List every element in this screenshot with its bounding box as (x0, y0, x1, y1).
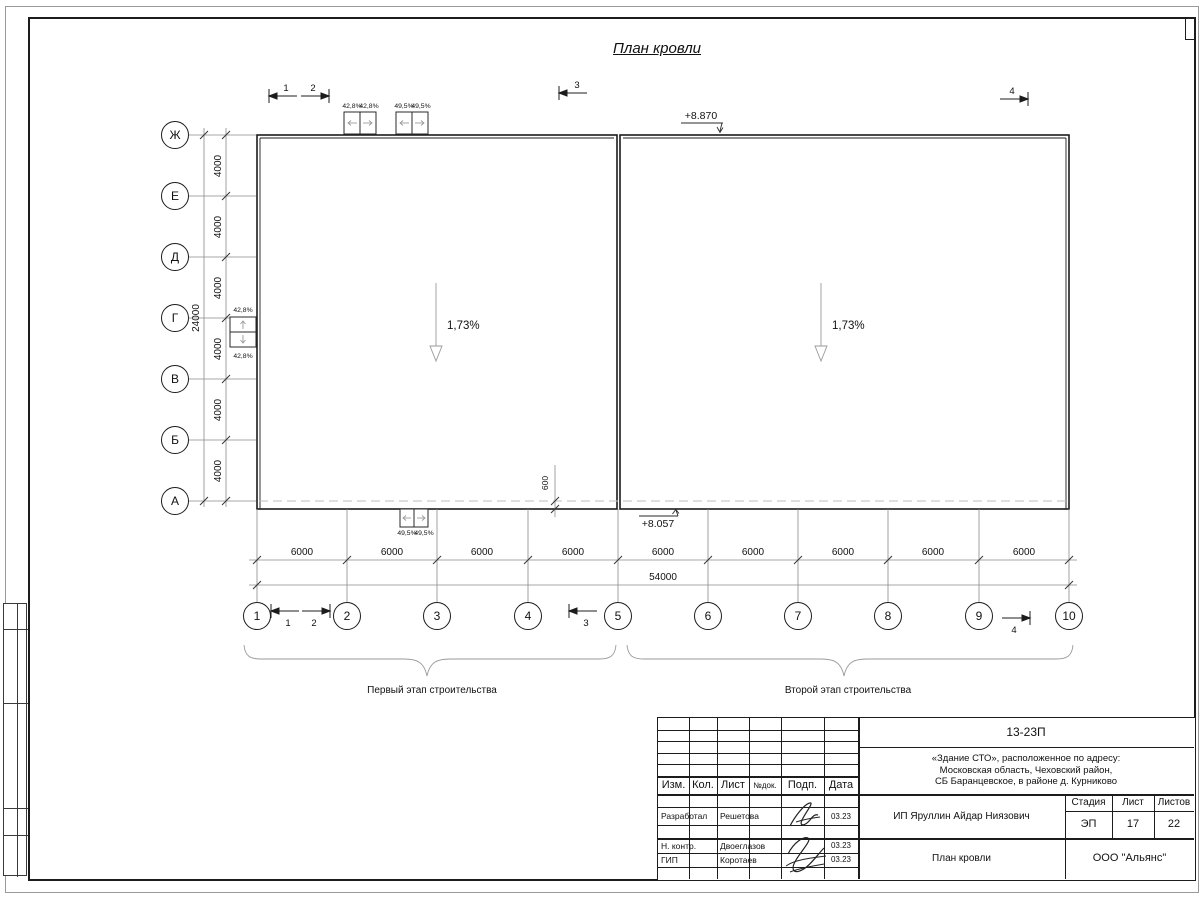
tb-role: Разработал (658, 808, 717, 825)
section-label: 2 (310, 83, 315, 94)
axis-label: Ж (169, 128, 180, 142)
slope-label: 1,73% (447, 320, 480, 332)
vent-slope-label: 49,5% (411, 103, 430, 110)
section-label: 3 (583, 618, 588, 629)
tb-col-data: Дата (824, 777, 858, 794)
elevation-label: +8.870 (685, 110, 718, 122)
tb-col-izm: Изм. (658, 777, 689, 794)
axis-label: 8 (885, 609, 892, 623)
tb-project-line: Московская область, Чеховский район, (940, 765, 1113, 776)
dim-label: 6000 (922, 547, 945, 558)
dim-label: 4000 (213, 398, 224, 421)
section-marks-bottom: 1 2 3 4 (271, 604, 1030, 636)
tb-project-line: «Здание СТО», расположенное по адресу: (932, 753, 1121, 764)
dim-label: 6000 (652, 547, 675, 558)
elevation-marks: +8.870 +8.057 (639, 110, 723, 530)
tb-project-name: «Здание СТО», расположенное по адресу: М… (858, 747, 1194, 794)
vent-slope-label: 42,8% (359, 103, 378, 110)
tb-drawing-title: План кровли (858, 838, 1065, 879)
dim-label: 6000 (291, 547, 314, 558)
dim-label: 4000 (213, 154, 224, 177)
tb-client: ИП Яруллин Айдар Ниязович (858, 795, 1065, 838)
tb-doc-number: 13-23П (858, 718, 1194, 747)
vent-slope-label: 42,8% (233, 353, 252, 360)
axis-label: Д (171, 250, 179, 264)
axis-label: 3 (434, 609, 441, 623)
tb-role: Н. контр. (658, 839, 717, 853)
tb-stage-value: ЭП (1065, 811, 1112, 838)
dim-label: 6000 (832, 547, 855, 558)
roof-vents-bottom: 49,5% 49,5% (397, 509, 433, 537)
section-label: 3 (574, 80, 579, 91)
tb-name: Решетова (717, 808, 781, 825)
vent-slope-label: 49,5% (414, 530, 433, 537)
dim-total-label: 24000 (191, 304, 202, 332)
dim-label: 4000 (213, 215, 224, 238)
roof-vents-left: 42,8% 42,8% (230, 307, 256, 360)
tb-sheets-label: Листов (1154, 795, 1194, 811)
roof-plan-svg: Ж Е Д Г В Б А 4000 (0, 0, 1200, 712)
dim-label: 4000 (213, 337, 224, 360)
axis-label: Г (172, 311, 179, 325)
tb-date: 03.23 (824, 808, 858, 825)
section-marks-top: 1 2 3 4 (269, 80, 1028, 106)
section-label: 1 (285, 618, 290, 629)
tb-sheet-value: 17 (1112, 811, 1154, 838)
roof-vents-top: 42,8% 42,8% 49,5% 49,5% (342, 103, 430, 134)
dim-label: 6000 (742, 547, 765, 558)
building-outline (257, 135, 1069, 509)
drawing-sheet: План кровли (0, 0, 1200, 900)
stage-braces (244, 645, 1073, 676)
tb-col-ndok: №док. (749, 777, 781, 794)
dim-label: 6000 (381, 547, 404, 558)
stage-second-label: Второй этап строительства (785, 685, 912, 696)
axis-label: 10 (1062, 609, 1076, 623)
title-block: Изм. Кол. Лист №док. Подп. Дата Разработ… (657, 717, 1196, 881)
tb-col-podp: Подп. (781, 777, 824, 794)
section-label: 4 (1011, 625, 1016, 636)
tb-role: ГИП (658, 853, 717, 867)
tb-project-line: СБ Баранцевское, в районе д. Курниково (935, 776, 1117, 787)
section-label: 1 (283, 83, 288, 94)
vent-slope-label: 42,8% (233, 307, 252, 314)
tb-col-list: Лист (717, 777, 749, 794)
dim-label: 4000 (213, 459, 224, 482)
dim-label: 6000 (1013, 547, 1036, 558)
axis-label: Б (171, 433, 179, 447)
axis-label: 7 (795, 609, 802, 623)
dim-label: 600 (540, 476, 550, 490)
stage-first-label: Первый этап строительства (367, 685, 497, 696)
tb-name: Двоеглазов (717, 839, 781, 853)
axis-label: А (171, 494, 179, 508)
signature-developer (784, 800, 824, 830)
section-label: 4 (1009, 86, 1014, 97)
elevation-label: +8.057 (642, 518, 675, 530)
axis-label: 5 (615, 609, 622, 623)
axis-label: 6 (705, 609, 712, 623)
axis-label: 4 (525, 609, 532, 623)
dim-label: 4000 (213, 276, 224, 299)
axis-label: 2 (344, 609, 351, 623)
axis-label: Е (171, 189, 179, 203)
axis-label: В (171, 372, 179, 386)
tb-sheets-value: 22 (1154, 811, 1194, 838)
signature-gip (780, 834, 832, 878)
dim-label: 6000 (471, 547, 494, 558)
tb-name: Коротаев (717, 853, 781, 867)
axis-label: 1 (254, 609, 261, 623)
dim-total-label: 54000 (649, 572, 677, 583)
tb-sheet-label: Лист (1112, 795, 1154, 811)
section-label: 2 (311, 618, 316, 629)
tb-col-kol: Кол. (689, 777, 717, 794)
axis-label: 9 (976, 609, 983, 623)
slope-arrows: 1,73% 1,73% (430, 283, 865, 361)
slope-label: 1,73% (832, 320, 865, 332)
tb-stage-label: Стадия (1065, 795, 1112, 811)
dimensions-left: 4000 4000 4000 4000 4000 4000 24000 (191, 128, 230, 507)
tb-company: ООО "Альянс" (1065, 838, 1194, 879)
dim-label: 6000 (562, 547, 585, 558)
